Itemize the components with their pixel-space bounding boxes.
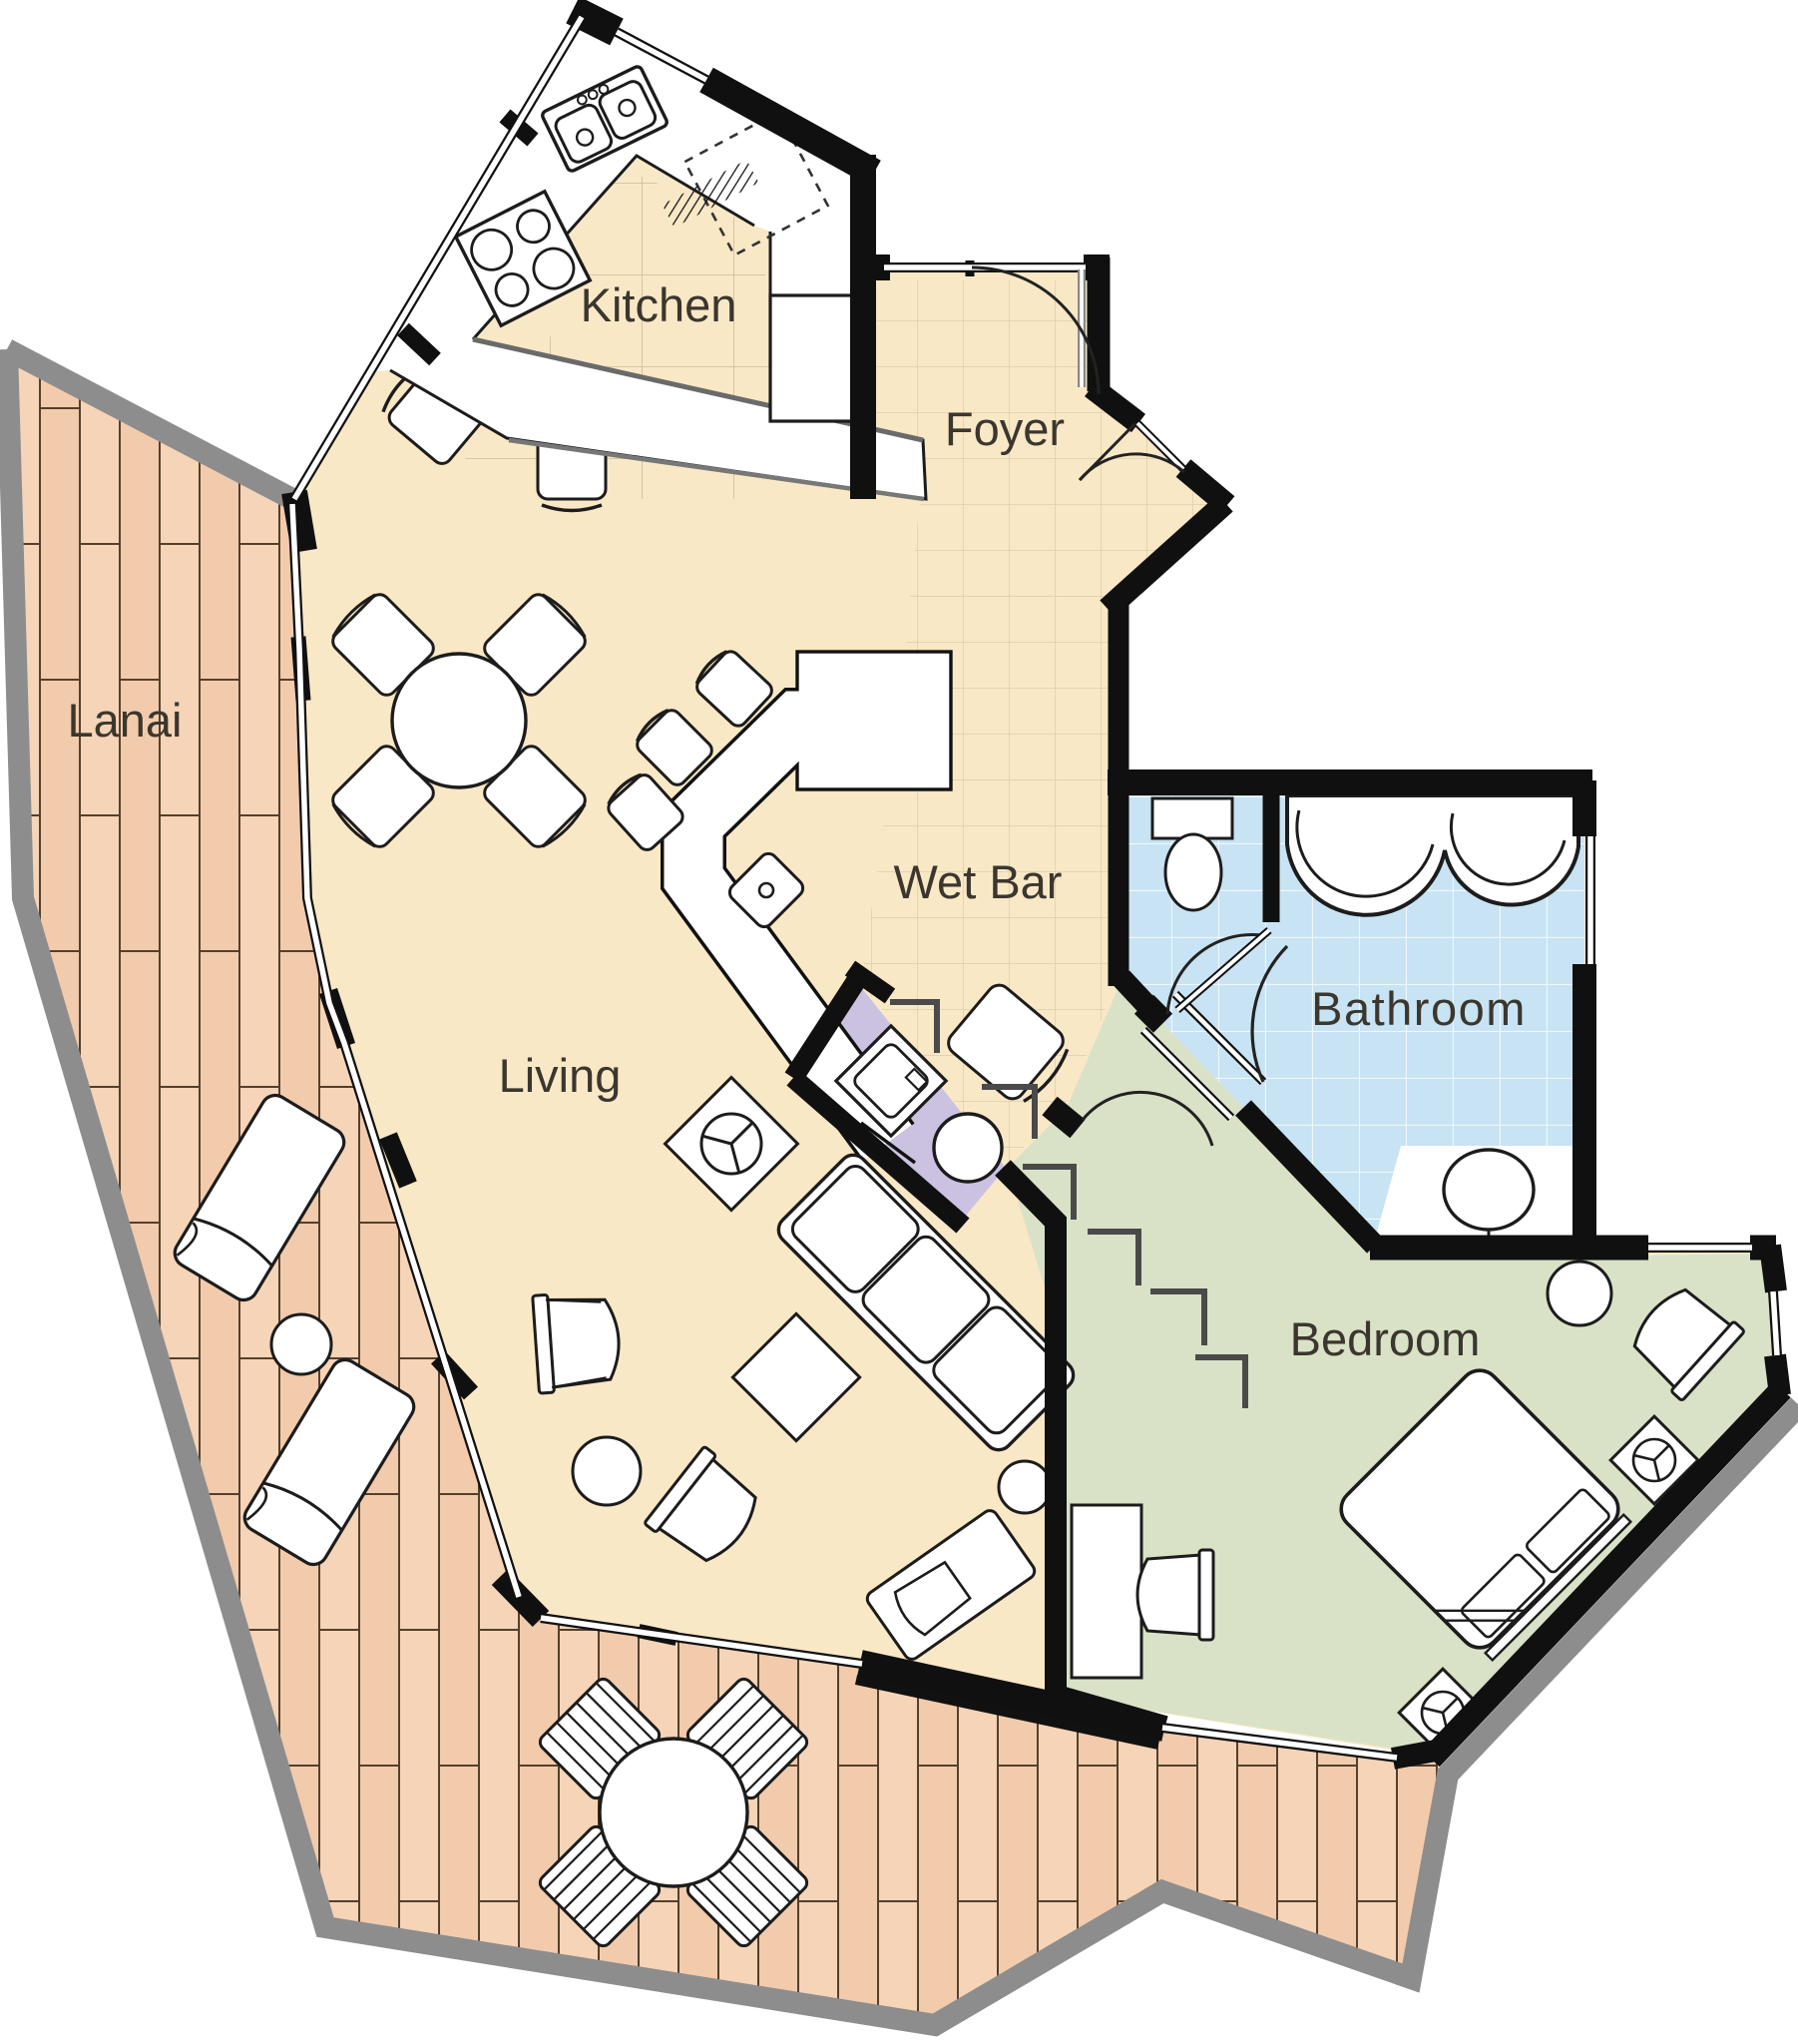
svg-text:Foyer: Foyer — [945, 402, 1065, 455]
svg-text:Lanai: Lanai — [68, 694, 183, 747]
svg-text:Wet Bar: Wet Bar — [894, 855, 1063, 908]
svg-text:Living: Living — [499, 1049, 622, 1102]
svg-text:Kitchen: Kitchen — [581, 278, 737, 331]
svg-text:Bathroom: Bathroom — [1311, 982, 1527, 1035]
svg-text:Bedroom: Bedroom — [1290, 1312, 1481, 1365]
